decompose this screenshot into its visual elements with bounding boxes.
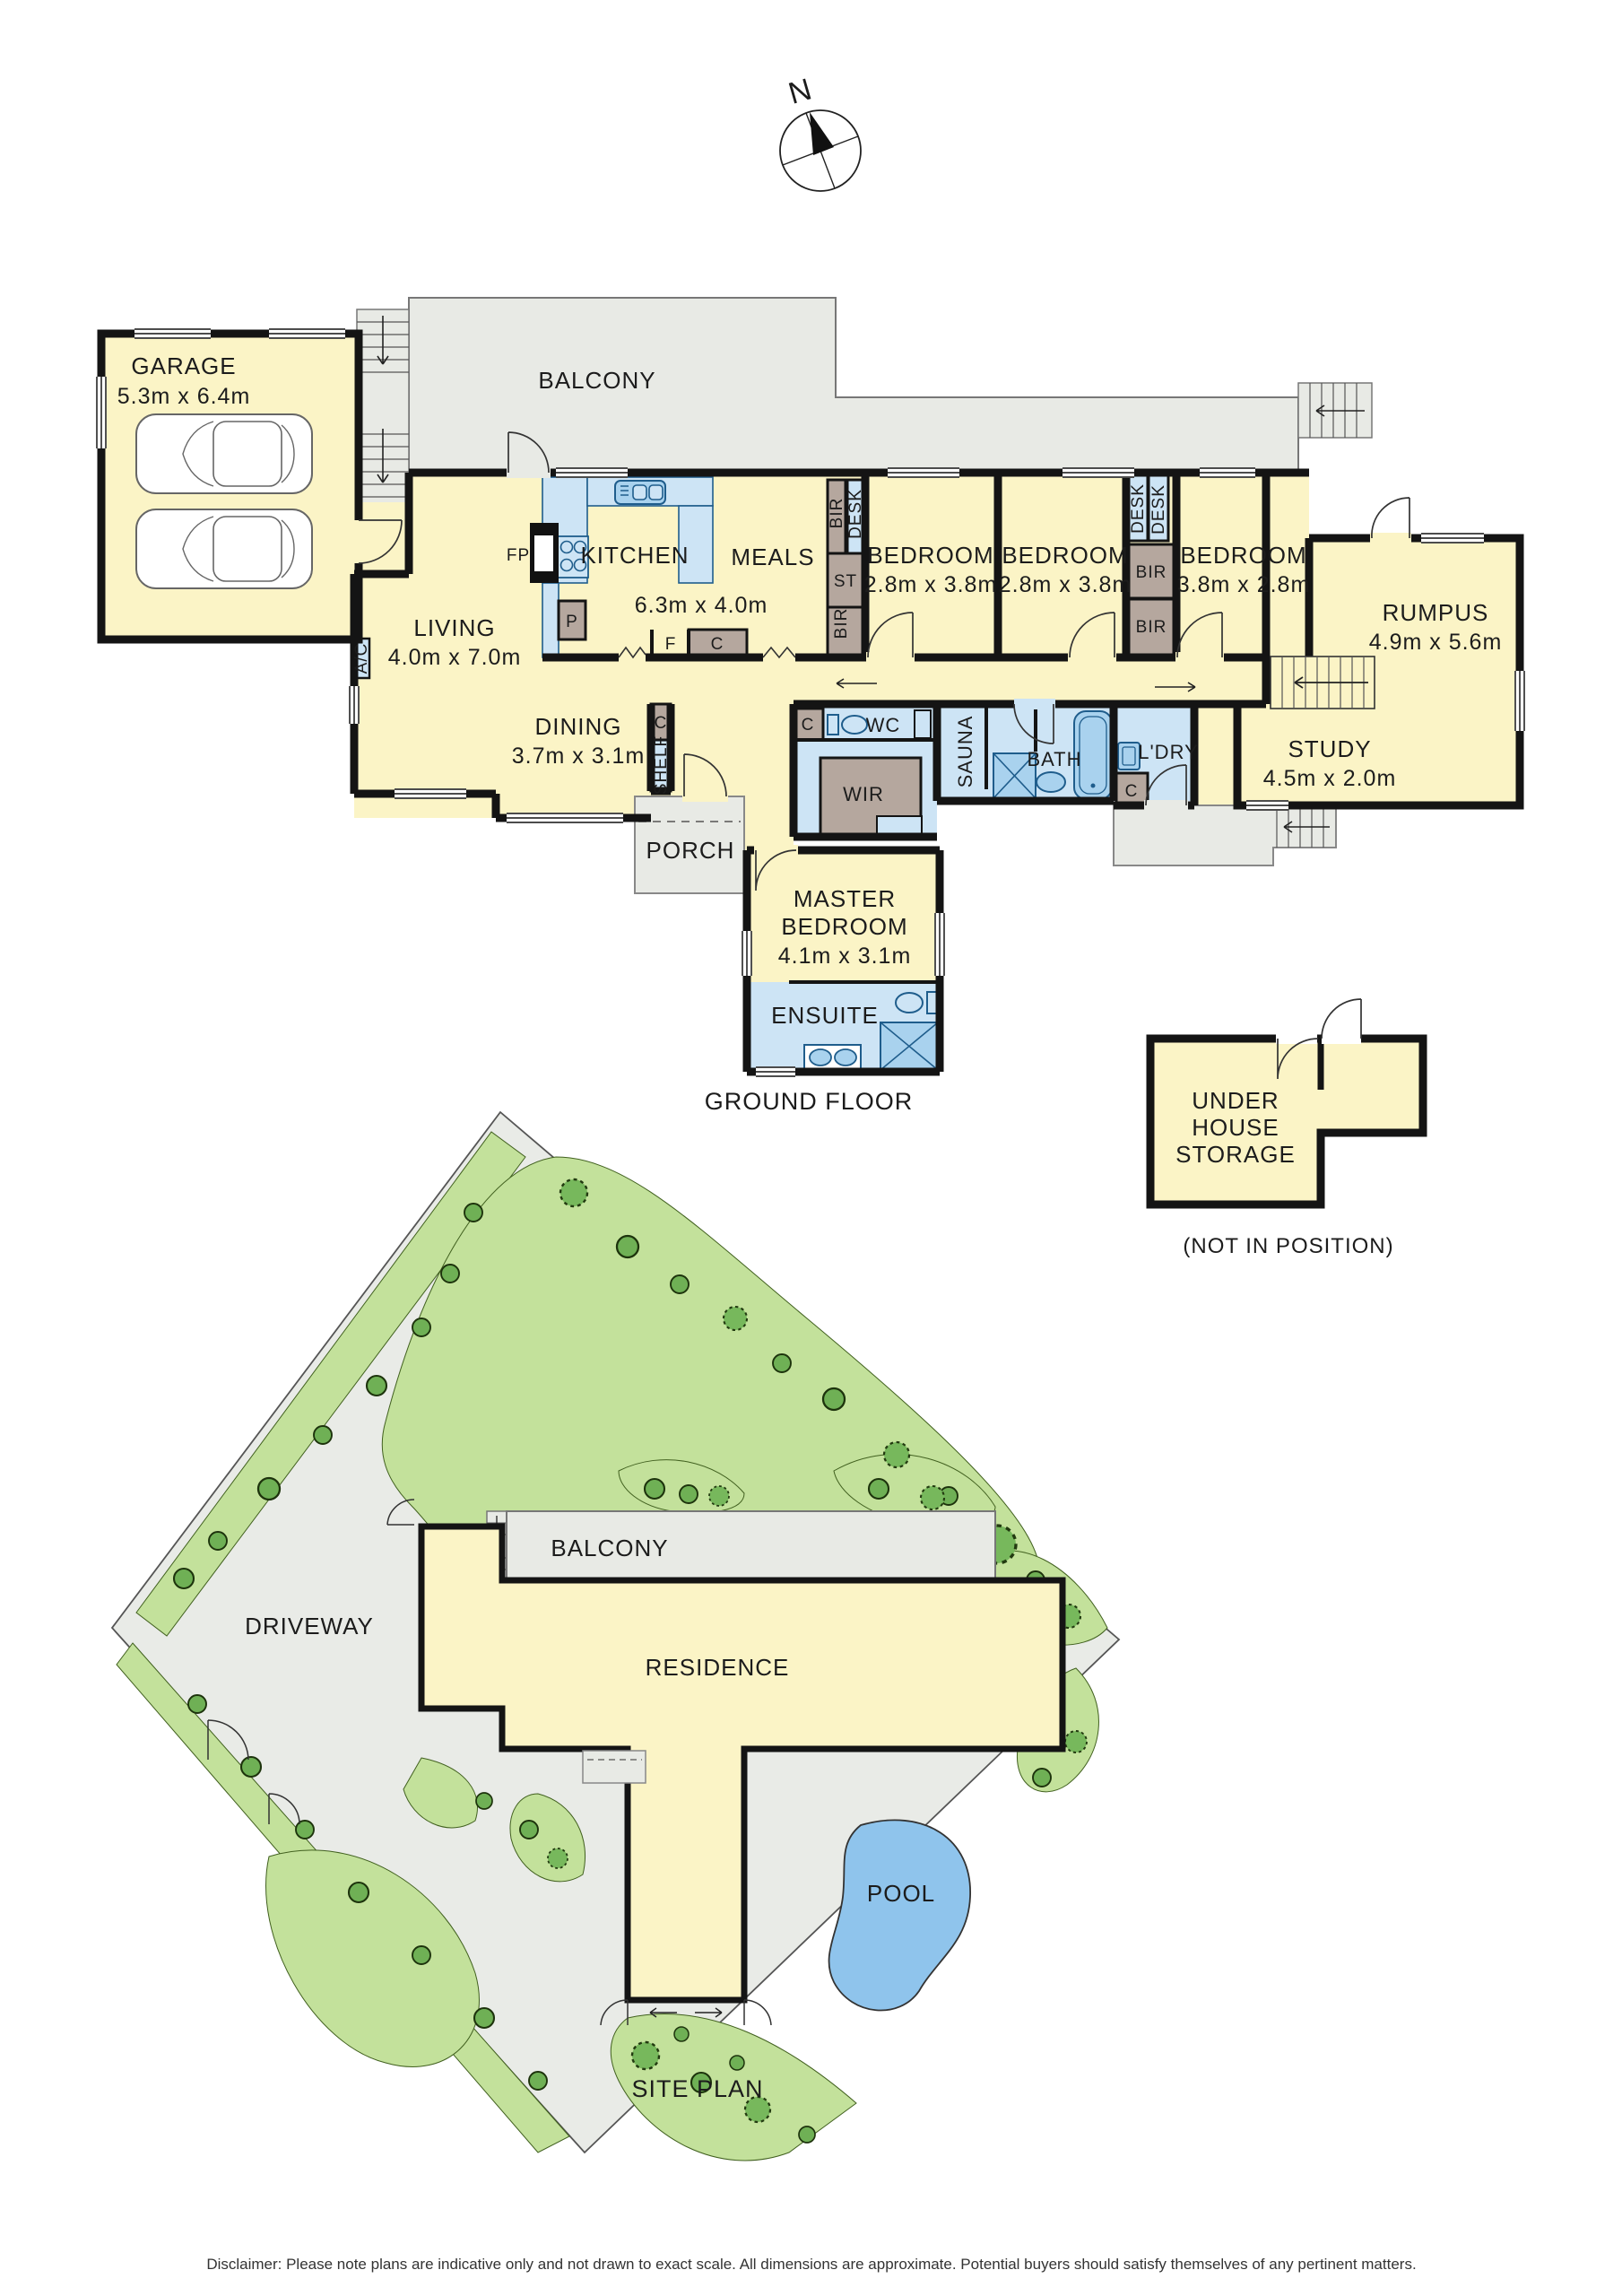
site-pool: POOL [829, 1820, 971, 2010]
kitchen-meals-dims: 6.3m x 4.0m [635, 593, 768, 618]
bath-label: BATH [1027, 748, 1081, 770]
aircon-label: A/C [352, 643, 371, 674]
storage-line2: HOUSE [1192, 1114, 1279, 1141]
study-dims: 4.5m x 2.0m [1263, 766, 1397, 791]
floorplan-drawing: N BALCONY PORCH [0, 0, 1622, 2296]
robe-meals-bottom-label: BIR [832, 608, 851, 639]
gf-laundry-trough-icon [1118, 743, 1140, 770]
wc-label: WC [866, 714, 901, 736]
storage-line3: STORAGE [1175, 1141, 1296, 1168]
desk-meals-label: DESK [846, 489, 865, 539]
pantry-label: P [566, 613, 578, 631]
site-pool-label: POOL [867, 1880, 935, 1907]
store-label: ST [834, 572, 857, 591]
cupboard-kitchen-label: C [711, 635, 724, 654]
under-house-storage: UNDER HOUSE STORAGE (NOT IN POSITION) [1150, 999, 1423, 1258]
sauna-label: SAUNA [954, 716, 976, 788]
master-line2: BEDROOM [781, 913, 907, 940]
desk-bed-1-label: DESK [1129, 483, 1148, 534]
cupboard-dining-label: C [655, 714, 668, 733]
living-dims: 4.0m x 7.0m [388, 645, 522, 670]
fridge-label: F [665, 635, 677, 654]
kitchen-label: KITCHEN [580, 542, 689, 569]
site-balcony-label: BALCONY [551, 1535, 668, 1561]
living-label: LIVING [413, 614, 495, 641]
site-plan: BALCONY RESIDENCE POOL DRIVEWAY SITE PLA… [112, 1112, 1119, 2161]
gf-porch-label: PORCH [646, 837, 735, 864]
storage-line1: UNDER [1192, 1087, 1279, 1114]
storage-note: (NOT IN POSITION) [1183, 1234, 1393, 1258]
robe-bed-1-label: BIR [1136, 563, 1167, 582]
cupboard-laundry-label: C [1125, 782, 1139, 801]
bedroom2-dims: 2.8m x 3.8m [999, 572, 1132, 597]
master-dims: 4.1m x 3.1m [778, 944, 912, 969]
robe-meals-top-label: BIR [828, 498, 846, 529]
gf-balcony-label: BALCONY [538, 367, 655, 394]
gf-sink-icon [615, 481, 665, 504]
bedroom1-dims: 2.8m x 3.8m [864, 572, 998, 597]
garage-label: GARAGE [131, 352, 236, 379]
compass-north-label: N [785, 72, 816, 111]
fp-label: FP [507, 546, 530, 565]
gf-internal-stairs [1271, 657, 1375, 709]
study-label: STUDY [1288, 735, 1371, 762]
site-driveway-label: DRIVEWAY [245, 1613, 374, 1639]
bedroom1-label: BEDROOM [867, 542, 993, 569]
ensuite-label: ENSUITE [771, 1002, 879, 1029]
gf-wc-toilet-icon [828, 715, 867, 735]
bedroom3-dims: 3.8m x 2.8m [1177, 572, 1311, 597]
ground-floor-title: GROUND FLOOR [705, 1088, 914, 1115]
robe-bed-2-label: BIR [1136, 618, 1167, 637]
site-residence-balcony: BALCONY [487, 1511, 995, 1580]
gf-rear-deck [1114, 805, 1336, 865]
disclaimer-text: Disclaimer: Please note plans are indica… [206, 2256, 1416, 2273]
dining-dims: 3.7m x 3.1m [512, 744, 646, 769]
desk-bed-2-label: DESK [1149, 484, 1168, 535]
gf-porch: PORCH [635, 796, 744, 893]
site-residence-label: RESIDENCE [646, 1654, 790, 1681]
shelf-label: SHELF [652, 735, 671, 795]
compass-icon: N [780, 72, 861, 191]
meals-label: MEALS [731, 544, 814, 570]
site-plan-title: SITE PLAN [631, 2075, 763, 2102]
garage-dims: 5.3m x 6.4m [117, 384, 251, 409]
floorplan-page: N BALCONY PORCH [0, 0, 1622, 2296]
cupboard-wc-label: C [802, 716, 815, 735]
laundry-label: L'DRY [1138, 741, 1199, 763]
rumpus-dims: 4.9m x 5.6m [1369, 630, 1503, 655]
gf-fireplace-icon [530, 523, 559, 583]
bedroom2-label: BEDROOM [1002, 542, 1128, 569]
bedroom3-label: BEDROOM [1180, 542, 1306, 569]
wir-label: WIR [843, 783, 884, 805]
master-line1: MASTER [794, 885, 896, 912]
rumpus-label: RUMPUS [1383, 599, 1489, 626]
dining-label: DINING [535, 713, 622, 740]
